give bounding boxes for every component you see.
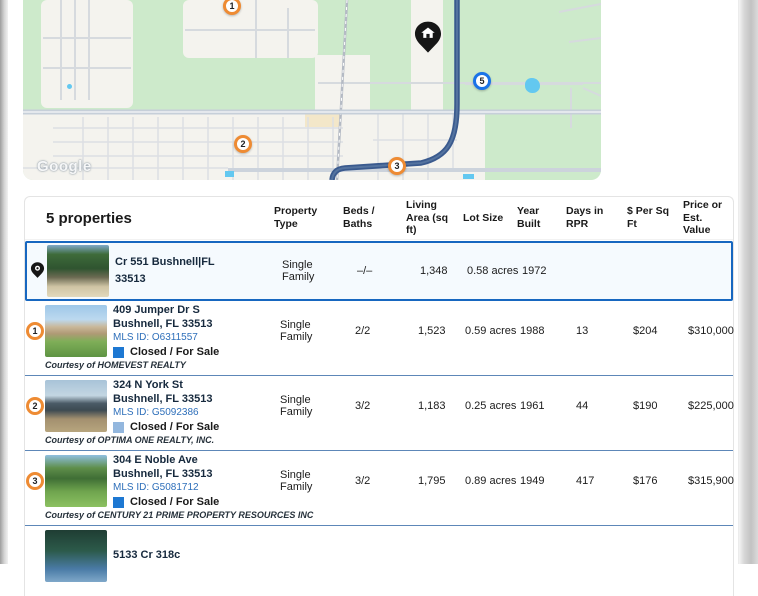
lot-size: 0.58 acres: [465, 265, 519, 277]
map-marker-3[interactable]: 3: [388, 157, 406, 175]
map-pond: [225, 171, 234, 177]
properties-table: 5 properties Property Type Beds / Baths …: [24, 196, 734, 596]
year-built: 1949: [517, 475, 566, 487]
living-area: 1,523: [406, 325, 463, 337]
price: $315,900: [683, 475, 733, 487]
col-year-built: Year Built: [517, 205, 566, 230]
map-marker-5[interactable]: 5: [473, 72, 491, 90]
lot-size: 0.89 acres: [463, 475, 517, 487]
address-line2: Bushnell, FL 33513: [113, 393, 268, 407]
address-line1: 5133 Cr 318c: [113, 549, 268, 563]
courtesy-text: Courtesy of HOMEVEST REALTY: [25, 359, 733, 375]
address-line2: Bushnell, FL 33513: [113, 468, 268, 482]
subject-property-pin-icon[interactable]: [413, 21, 443, 57]
status-square-icon: [113, 422, 124, 433]
property-type: Single Family: [274, 319, 343, 343]
col-lot-size: Lot Size: [463, 212, 517, 225]
beds-baths: 2/2: [343, 325, 406, 337]
lot-size: 0.59 acres: [463, 325, 517, 337]
col-beds-baths: Beds / Baths: [343, 205, 406, 230]
address-line1: 409 Jumper Dr S: [113, 304, 268, 318]
row-marker-number: 2: [26, 397, 44, 415]
table-row[interactable]: 1 409 Jumper Dr S Bushnell, FL 33513 MLS…: [25, 303, 733, 359]
address-line2: 33513: [115, 271, 270, 288]
days-in-rpr: 44: [566, 400, 627, 412]
status-square-icon: [113, 497, 124, 508]
property-row-block: 5133 Cr 318c: [25, 526, 733, 584]
table-row[interactable]: 2 324 N York St Bushnell, FL 33513 MLS I…: [25, 378, 733, 434]
table-row[interactable]: 3 304 E Noble Ave Bushnell, FL 33513 MLS…: [25, 453, 733, 509]
map-marker-2[interactable]: 2: [234, 135, 252, 153]
year-built: 1988: [517, 325, 566, 337]
status-square-icon: [113, 347, 124, 358]
address-line1: 304 E Noble Ave: [113, 454, 268, 468]
map-legend: Closed: [619, 0, 687, 7]
mls-id-link[interactable]: MLS ID: G5092386: [113, 406, 268, 419]
days-in-rpr: 13: [566, 325, 627, 337]
subject-pin-icon: [30, 261, 45, 281]
price: $310,000: [683, 325, 733, 337]
map[interactable]: 1 2 3 5 Google: [23, 0, 601, 180]
living-area: 1,348: [408, 265, 465, 277]
table-row-subject[interactable]: Cr 551 Bushnell|FL 33513 Single Family –…: [25, 241, 733, 301]
per-sq-ft: $190: [627, 400, 683, 412]
col-days-in-rpr: Days in RPR: [566, 205, 627, 230]
property-photo[interactable]: [45, 530, 107, 582]
address-line2: Bushnell, FL 33513: [113, 318, 268, 332]
property-photo[interactable]: [47, 245, 109, 297]
scrollbar[interactable]: [738, 0, 758, 564]
mls-id-link[interactable]: MLS ID: G5081712: [113, 481, 268, 494]
col-property-type: Property Type: [274, 205, 343, 230]
property-row-block: 3 304 E Noble Ave Bushnell, FL 33513 MLS…: [25, 451, 733, 526]
status-label: Closed / For Sale: [130, 496, 219, 508]
year-built: 1961: [517, 400, 566, 412]
beds-baths: 3/2: [343, 475, 406, 487]
beds-baths: –/–: [345, 265, 408, 277]
window-edge-left: [0, 0, 8, 564]
row-marker-number: 3: [26, 472, 44, 490]
status-label: Closed / For Sale: [130, 346, 219, 358]
mls-id-link[interactable]: MLS ID: O6311557: [113, 331, 268, 344]
map-roads: [23, 0, 601, 180]
table-title: 5 properties: [25, 210, 274, 227]
living-area: 1,795: [406, 475, 463, 487]
courtesy-text: Courtesy of CENTURY 21 PRIME PROPERTY RE…: [25, 509, 733, 525]
map-pond: [463, 174, 474, 179]
property-type: Single Family: [274, 469, 343, 493]
beds-baths: 3/2: [343, 400, 406, 412]
per-sq-ft: $176: [627, 475, 683, 487]
living-area: 1,183: [406, 400, 463, 412]
courtesy-text: Courtesy of OPTIMA ONE REALTY, INC.: [25, 434, 733, 450]
property-type: Single Family: [276, 259, 345, 283]
google-watermark: Google: [37, 158, 92, 175]
per-sq-ft: $204: [627, 325, 683, 337]
property-row-block: 2 324 N York St Bushnell, FL 33513 MLS I…: [25, 376, 733, 451]
property-photo[interactable]: [45, 380, 107, 432]
address-line1: Cr 551 Bushnell|FL: [115, 254, 270, 271]
table-header: 5 properties Property Type Beds / Baths …: [25, 197, 733, 240]
table-row[interactable]: 5133 Cr 318c: [25, 528, 733, 584]
map-pond: [525, 78, 540, 93]
map-pond: [67, 84, 72, 89]
year-built: 1972: [519, 265, 568, 277]
property-row-block: 1 409 Jumper Dr S Bushnell, FL 33513 MLS…: [25, 301, 733, 376]
property-photo[interactable]: [45, 455, 107, 507]
col-per-sq-ft: $ Per Sq Ft: [627, 205, 683, 230]
row-marker-number: 1: [26, 322, 44, 340]
col-price: Price or Est. Value: [683, 199, 733, 237]
price: $225,000: [683, 400, 733, 412]
address-line1: 324 N York St: [113, 379, 268, 393]
status-label: Closed / For Sale: [130, 421, 219, 433]
property-photo[interactable]: [45, 305, 107, 357]
col-living-area: Living Area (sq ft): [406, 199, 463, 237]
property-type: Single Family: [274, 394, 343, 418]
lot-size: 0.25 acres: [463, 400, 517, 412]
days-in-rpr: 417: [566, 475, 627, 487]
